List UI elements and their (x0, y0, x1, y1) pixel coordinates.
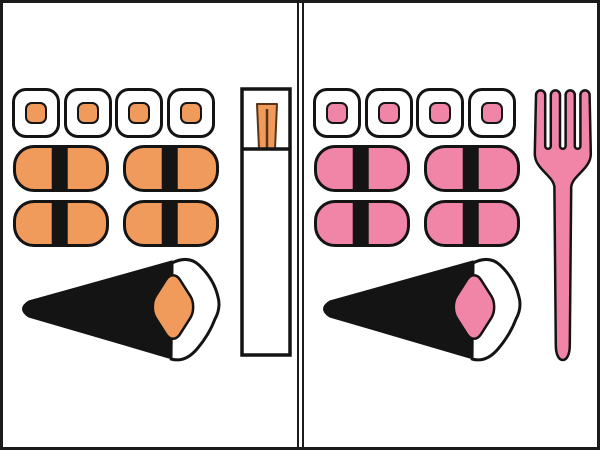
nori-band (52, 201, 68, 247)
maki-roll (416, 88, 464, 138)
fork (532, 85, 594, 369)
nori-band (352, 146, 368, 192)
nigiri-piece (123, 145, 219, 192)
nori-band (162, 201, 178, 247)
temaki-nori-cone (324, 262, 473, 357)
fork-shape (534, 90, 590, 360)
maki-filling (429, 102, 451, 124)
nigiri-piece (13, 145, 109, 192)
nori-band (52, 146, 68, 192)
maki-roll (167, 88, 215, 138)
maki-filling (128, 102, 150, 124)
maki-roll (64, 88, 112, 138)
chopsticks-in-sleeve (239, 86, 293, 360)
temaki-nori-cone (24, 262, 173, 357)
nigiri-piece (424, 145, 520, 192)
nori-band (462, 201, 478, 247)
maki-filling (326, 102, 348, 124)
maki-roll (313, 88, 361, 138)
nigiri-piece (314, 200, 410, 247)
maki-roll (12, 88, 60, 138)
nigiri-piece (424, 200, 520, 247)
maki-filling (25, 102, 47, 124)
maki-roll (115, 88, 163, 138)
maki-filling (77, 102, 99, 124)
nigiri-piece (123, 200, 219, 247)
nigiri-piece (314, 145, 410, 192)
nori-band (162, 146, 178, 192)
maki-filling (481, 102, 503, 124)
temaki-hand-roll (13, 253, 225, 371)
comparison-illustration (0, 0, 600, 450)
nigiri-piece (13, 200, 109, 247)
maki-roll (365, 88, 413, 138)
nori-band (352, 201, 368, 247)
nori-band (462, 146, 478, 192)
panel-right (302, 3, 598, 447)
maki-roll (468, 88, 516, 138)
maki-filling (180, 102, 202, 124)
maki-filling (378, 102, 400, 124)
temaki-hand-roll (314, 253, 526, 371)
panel-left (3, 3, 299, 447)
